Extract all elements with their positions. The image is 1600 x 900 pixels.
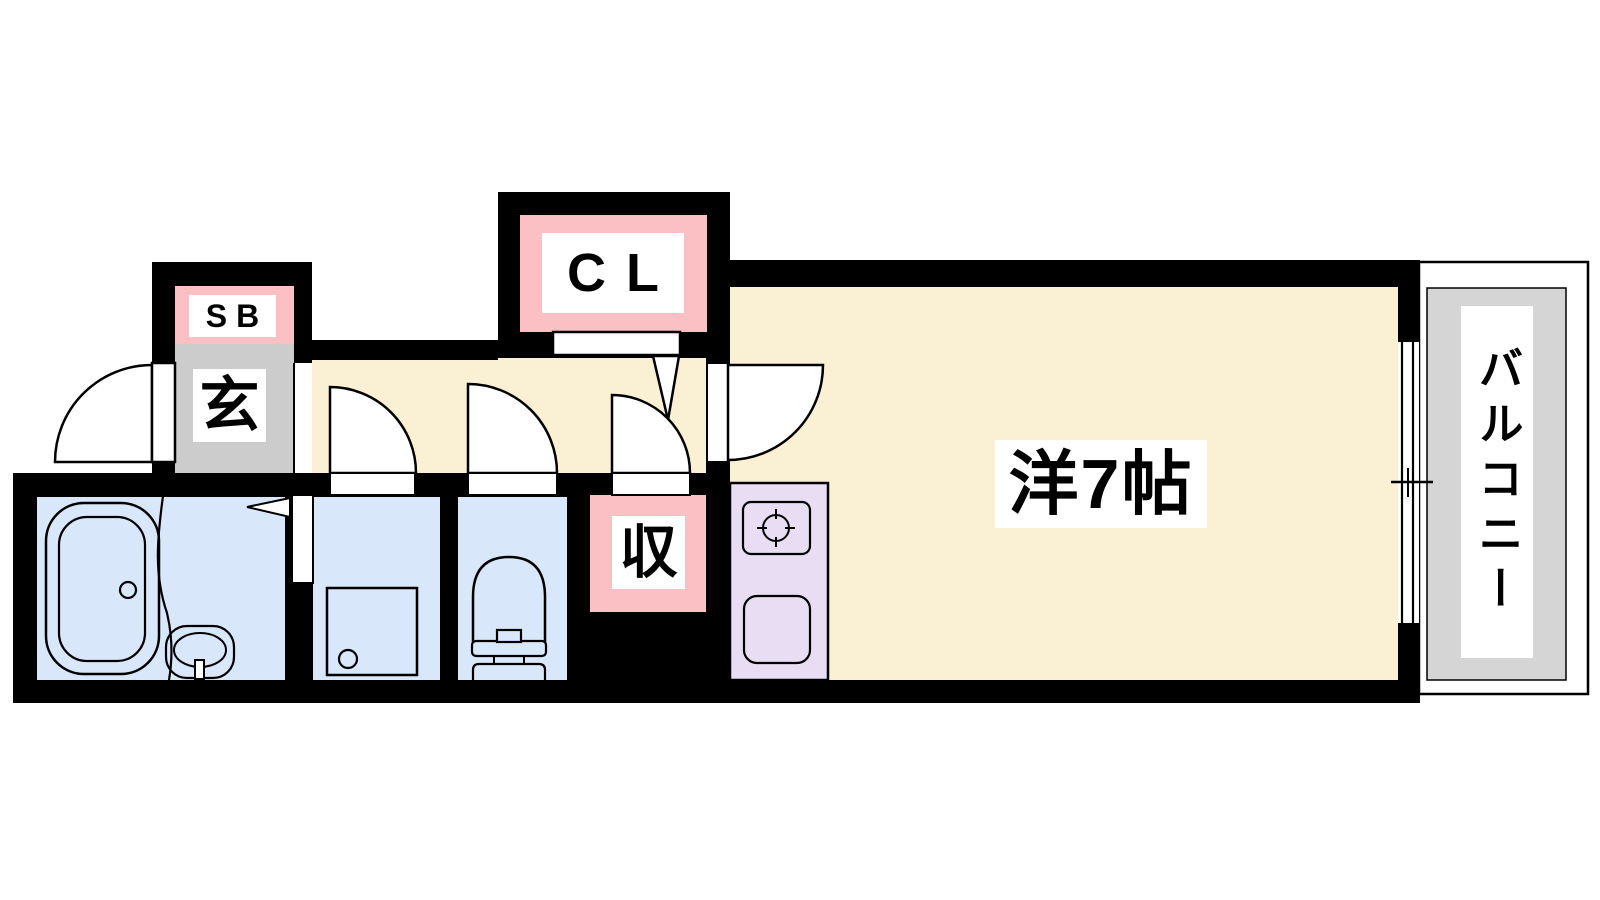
storage-door-leaf — [612, 473, 690, 495]
storage-label: 収 — [612, 516, 685, 589]
floor-plan-page: SB 玄 CL 収 洋7帖 バルコニー — [0, 0, 1600, 900]
bathroom-floor — [37, 495, 292, 680]
closet-label: CL — [542, 233, 684, 313]
entrance-label: 玄 — [193, 369, 266, 442]
wall-room-top — [728, 260, 1420, 287]
bathroom-door — [292, 495, 313, 583]
entrance-door-leaf — [152, 363, 175, 462]
balcony-label: バルコニー — [1461, 306, 1533, 658]
laundry-door-leaf — [330, 473, 415, 495]
toilet-notch — [497, 630, 521, 642]
main-room-door-frame — [707, 363, 728, 462]
entrance-door-swing — [55, 365, 152, 462]
wall-window-stub-bottom — [1398, 623, 1420, 688]
floor-plan-drawing — [0, 0, 1600, 900]
shoe-box-label: SB — [189, 295, 276, 337]
toilet-door-leaf — [468, 473, 557, 495]
wall-hall-top — [312, 340, 498, 360]
toilet-seat-bar — [472, 641, 546, 656]
wall-laundry-toilet — [440, 495, 458, 680]
wall-window-stub-top — [1398, 285, 1420, 342]
entrance-opening — [294, 363, 312, 473]
closet-door-track — [553, 332, 680, 355]
washbasin-faucet-icon — [195, 660, 204, 679]
wall-left — [13, 473, 37, 703]
wall-bottom — [13, 680, 1420, 703]
main-room-label: 洋7帖 — [995, 440, 1207, 528]
